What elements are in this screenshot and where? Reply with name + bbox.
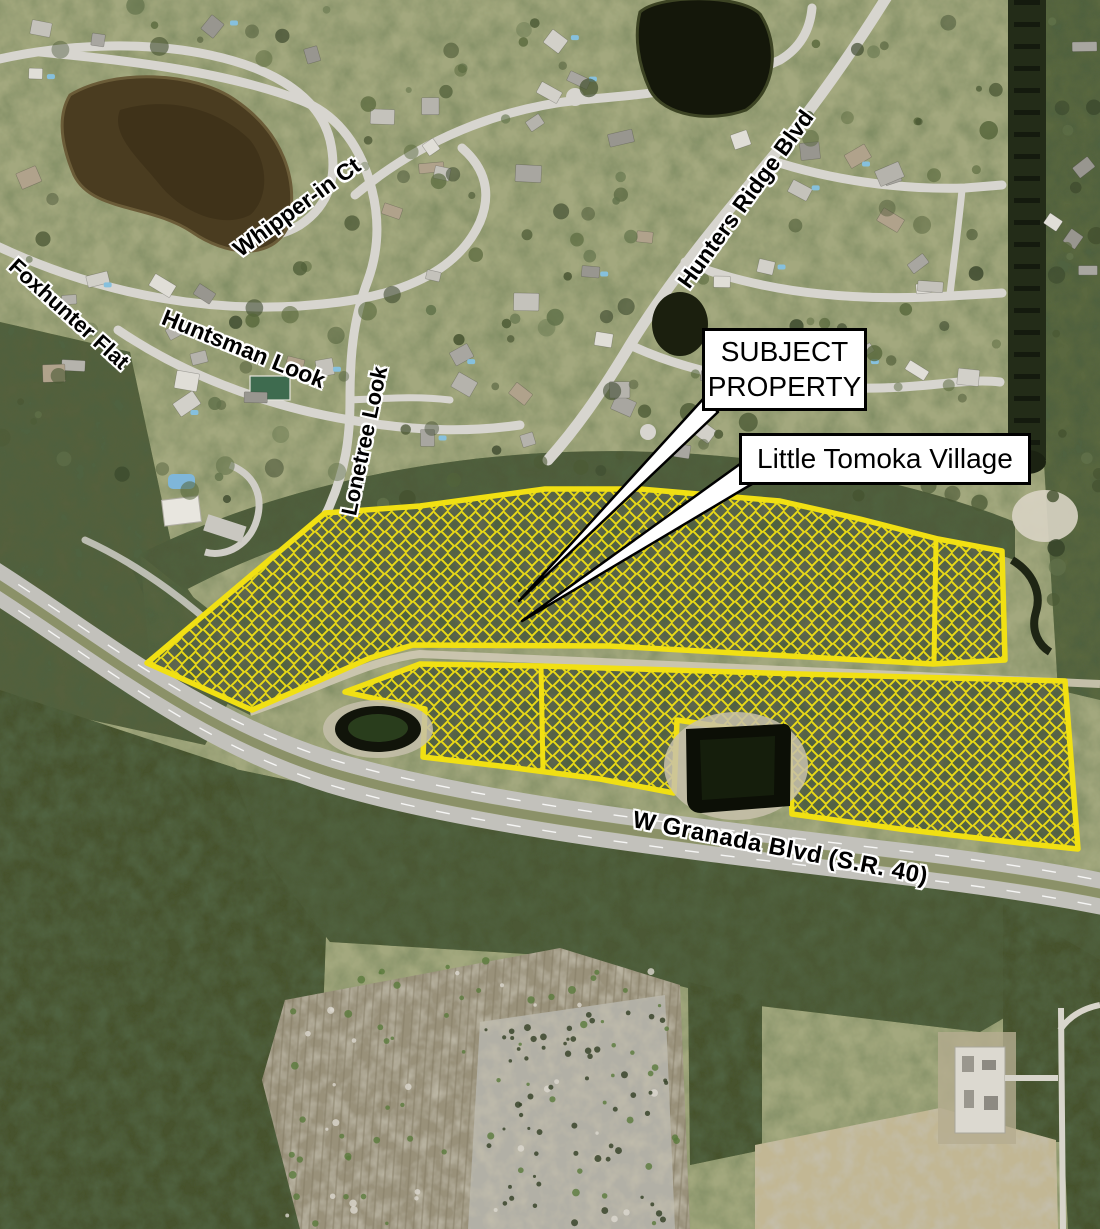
subject-property-callout: SUBJECT PROPERTY — [702, 328, 867, 411]
aerial-imagery — [0, 0, 1100, 1229]
sand-clearing — [1012, 490, 1078, 542]
aerial-map: SUBJECT PROPERTY Little Tomoka Village F… — [0, 0, 1100, 1229]
pond-hunters-ridge — [652, 292, 708, 356]
village-callout: Little Tomoka Village — [739, 433, 1031, 485]
lake-north — [637, 0, 772, 116]
subject-property-line2: PROPERTY — [705, 370, 864, 404]
parcel-division-north — [934, 540, 936, 663]
subject-property-line1: SUBJECT — [705, 335, 864, 369]
parcel-division-south — [541, 667, 543, 770]
